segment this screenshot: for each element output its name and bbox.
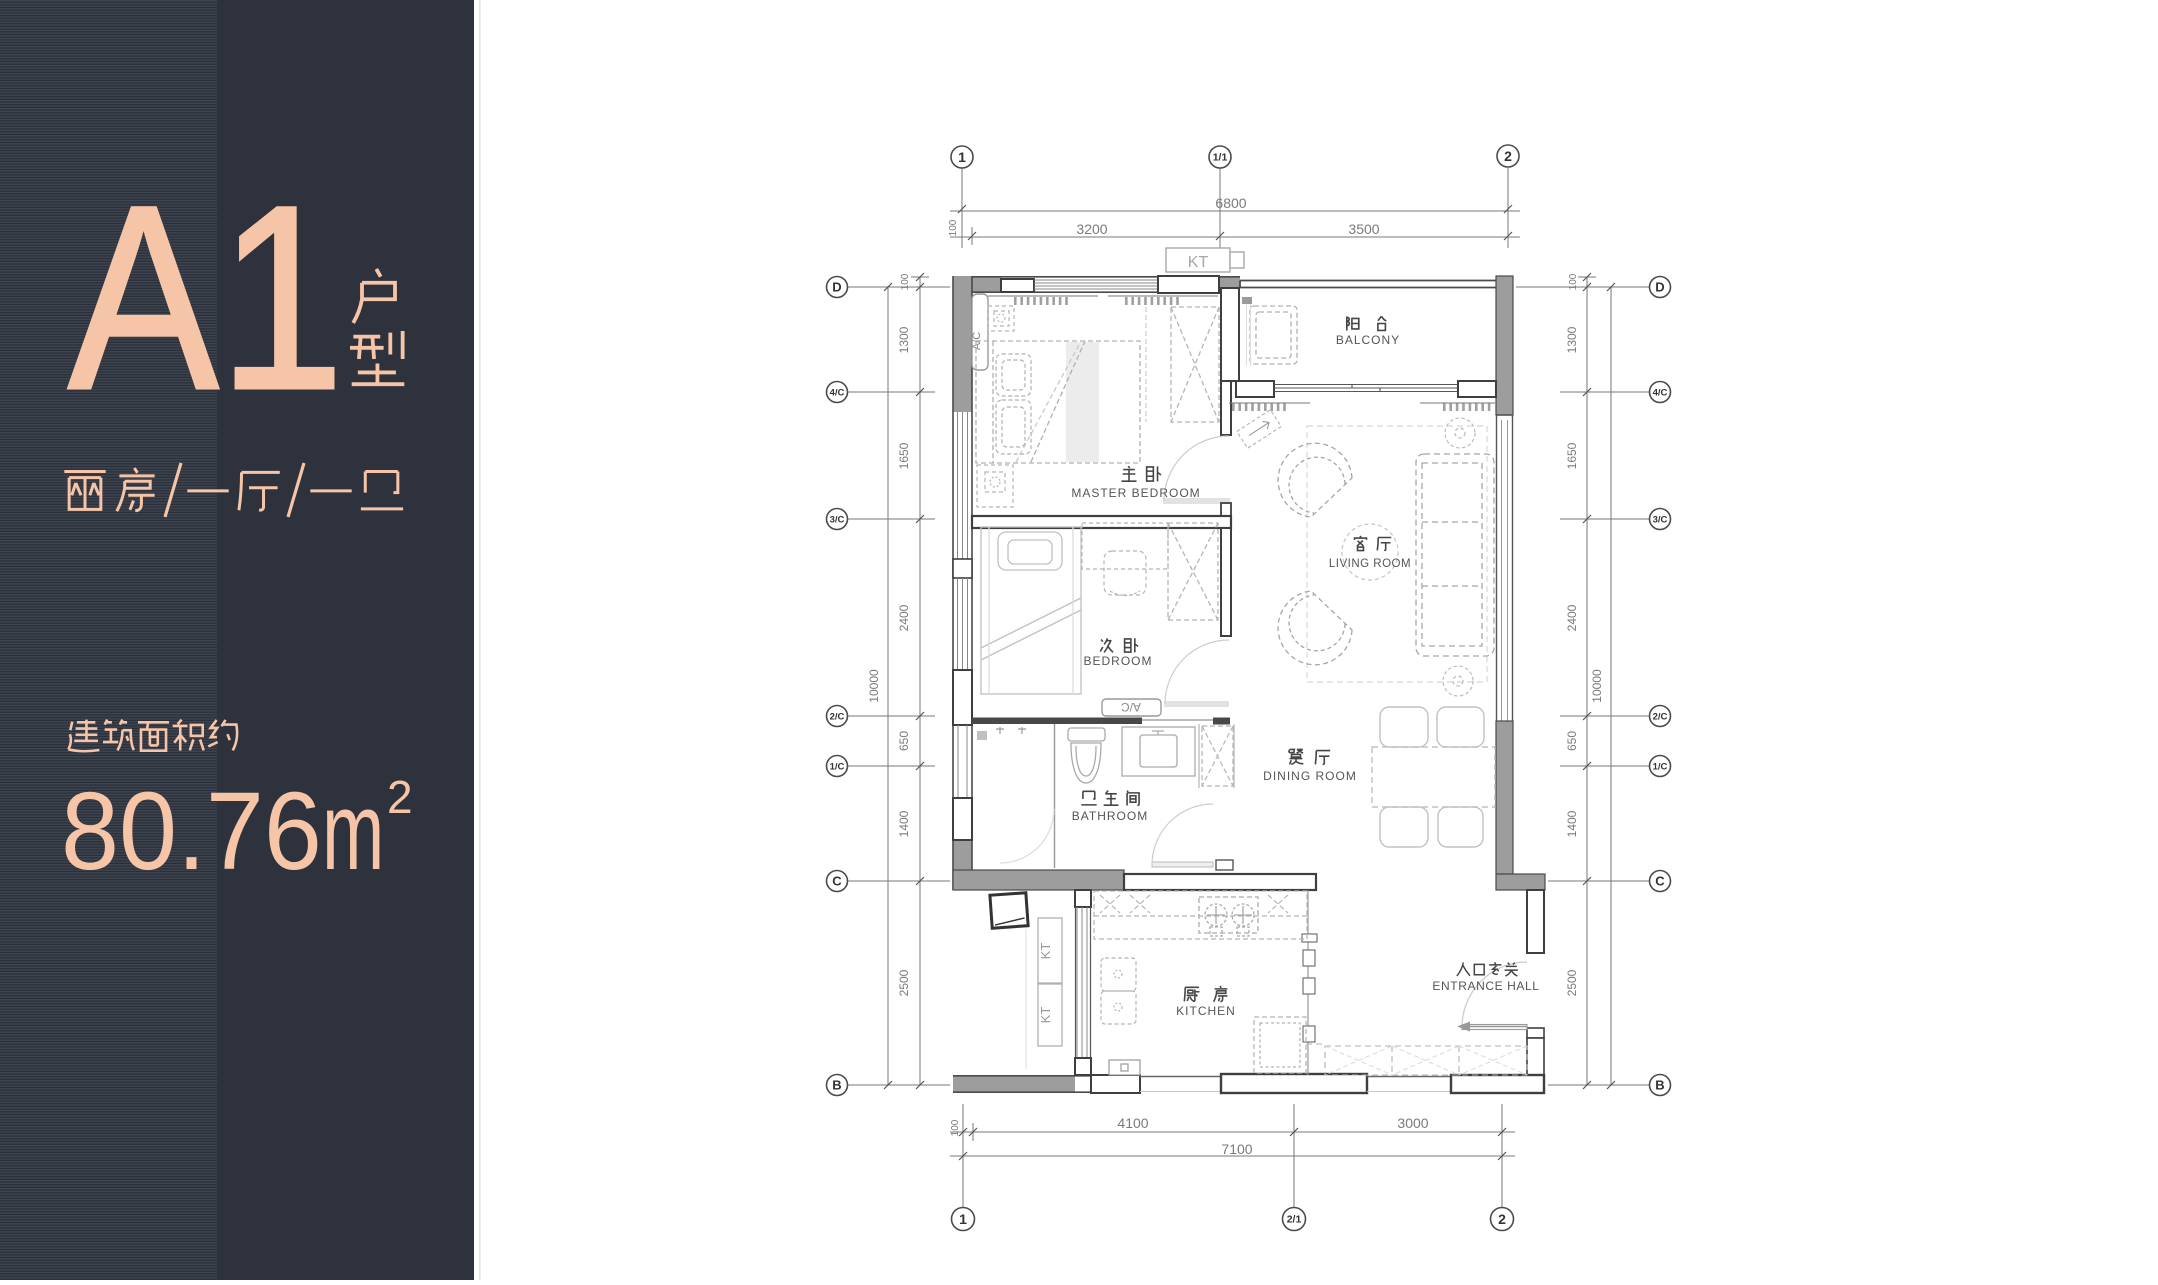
svg-text:C: C xyxy=(832,874,842,889)
svg-text:2: 2 xyxy=(1498,1211,1506,1227)
svg-text:100: 100 xyxy=(1568,273,1579,290)
svg-text:6800: 6800 xyxy=(1215,195,1246,211)
svg-text:1400: 1400 xyxy=(897,810,911,837)
svg-text:2400: 2400 xyxy=(897,604,911,631)
svg-text:m: m xyxy=(322,770,384,893)
svg-text:D: D xyxy=(832,280,841,295)
svg-text:BEDROOM: BEDROOM xyxy=(1083,654,1152,668)
svg-text:4100: 4100 xyxy=(1117,1115,1148,1131)
svg-text:80.76: 80.76 xyxy=(61,769,322,892)
svg-text:BATHROOM: BATHROOM xyxy=(1072,809,1148,823)
svg-text:ENTRANCE HALL: ENTRANCE HALL xyxy=(1432,979,1539,993)
svg-text:2: 2 xyxy=(387,771,413,823)
svg-text:KT: KT xyxy=(1188,254,1209,271)
svg-text:2500: 2500 xyxy=(1565,969,1579,996)
svg-text:1650: 1650 xyxy=(897,442,911,469)
svg-text:1: 1 xyxy=(958,149,966,165)
svg-text:1300: 1300 xyxy=(1565,326,1579,353)
svg-text:10000: 10000 xyxy=(867,669,881,703)
svg-text:3200: 3200 xyxy=(1076,221,1107,237)
svg-text:B: B xyxy=(832,1078,841,1093)
svg-text:100: 100 xyxy=(950,1119,961,1136)
svg-text:1300: 1300 xyxy=(897,326,911,353)
svg-text:100: 100 xyxy=(900,273,911,290)
svg-text:A/C: A/C xyxy=(1121,700,1141,714)
svg-text:4/C: 4/C xyxy=(1653,388,1668,399)
svg-text:1/1: 1/1 xyxy=(1213,152,1228,164)
svg-text:D: D xyxy=(1655,280,1664,295)
svg-text:2400: 2400 xyxy=(1565,604,1579,631)
svg-text:7100: 7100 xyxy=(1221,1141,1252,1157)
svg-text:LIVING ROOM: LIVING ROOM xyxy=(1329,558,1411,570)
svg-text:100: 100 xyxy=(948,219,959,236)
svg-text:1: 1 xyxy=(959,1211,967,1227)
svg-text:1/C: 1/C xyxy=(1653,762,1668,773)
svg-text:3/C: 3/C xyxy=(1653,515,1668,526)
svg-text:650: 650 xyxy=(1565,731,1579,751)
svg-text:3/C: 3/C xyxy=(830,515,845,526)
svg-text:10000: 10000 xyxy=(1590,669,1604,703)
svg-text:2: 2 xyxy=(1504,148,1512,164)
svg-text:1/C: 1/C xyxy=(830,762,845,773)
svg-text:MASTER BEDROOM: MASTER BEDROOM xyxy=(1071,486,1200,500)
svg-text:KITCHEN: KITCHEN xyxy=(1176,1004,1236,1018)
svg-text:3500: 3500 xyxy=(1348,221,1379,237)
svg-text:DINING ROOM: DINING ROOM xyxy=(1263,769,1357,783)
svg-text:BALCONY: BALCONY xyxy=(1336,333,1400,347)
svg-text:1400: 1400 xyxy=(1565,810,1579,837)
svg-text:2/C: 2/C xyxy=(1653,712,1668,723)
svg-text:B: B xyxy=(1655,1078,1664,1093)
svg-text:2/C: 2/C xyxy=(830,712,845,723)
svg-text:650: 650 xyxy=(897,731,911,751)
svg-text:2500: 2500 xyxy=(897,969,911,996)
svg-text:C: C xyxy=(1655,874,1665,889)
svg-text:KT: KT xyxy=(1038,943,1053,960)
svg-text:4/C: 4/C xyxy=(830,388,845,399)
svg-text:3000: 3000 xyxy=(1397,1115,1428,1131)
svg-text:KT: KT xyxy=(1038,1007,1053,1024)
svg-text:2/1: 2/1 xyxy=(1287,1214,1302,1226)
svg-text:1650: 1650 xyxy=(1565,442,1579,469)
svg-text:A1: A1 xyxy=(68,151,344,443)
